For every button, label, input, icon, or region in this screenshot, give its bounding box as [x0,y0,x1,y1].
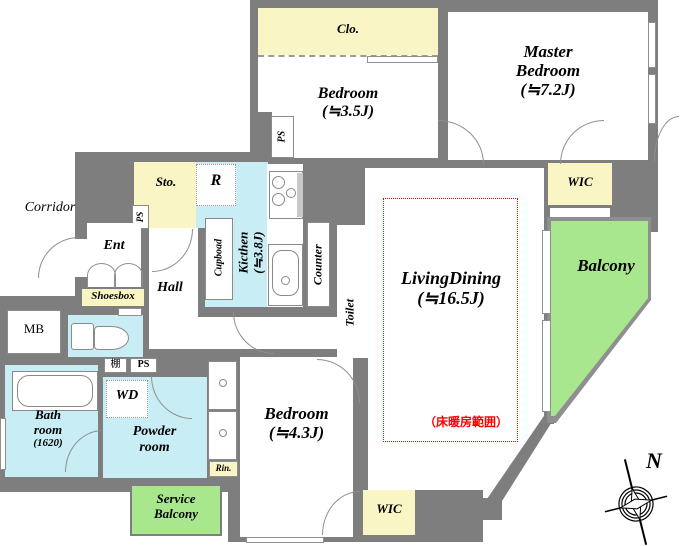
window [648,74,656,124]
room-name: Bath [14,408,82,423]
window [246,537,324,543]
label-ent: Ent [94,238,134,254]
label-bathroom: Bath room (1620) [14,408,82,449]
burner-icon [272,193,285,206]
faucet-icon [281,276,290,285]
room-name: LivingDining [389,268,513,288]
room-name: Balcony [132,507,220,522]
label-powder-room: Powder room [112,424,197,455]
label-ps-bedroom1: PS [276,117,287,157]
room-name: Bedroom [240,404,353,423]
label-corridor: Corridor [8,200,92,216]
label-floor-heating: （床暖房範囲） [416,416,516,429]
wall-counter-block [337,158,365,225]
toilet-sliding-door [118,308,142,316]
floor-heating-zone [383,198,518,442]
stove-grill [297,173,303,217]
label-shelf: 棚 [105,359,126,370]
bathtub-inner [17,375,93,407]
room-size: (≒4.3J) [240,423,353,442]
label-master-bedroom: Master Bedroom (≒7.2J) [478,42,618,99]
label-wic-upper: WIC [556,175,604,190]
toilet-bowl [94,326,129,350]
label-rin: Rin. [209,463,238,473]
room-name: Kicthen [236,208,251,298]
room-name: Powder [112,424,197,440]
label-kitchen: Kicthen (≒3.8J) [236,208,265,298]
window [648,22,656,68]
room-name: Service [132,492,220,507]
label-bedroom-4-3: Bedroom (≒4.3J) [240,404,353,442]
label-toilet: Toilet [343,283,356,343]
door-arc-entrance [38,237,79,278]
label-mb: MB [16,322,52,337]
room-name: room [14,423,82,438]
label-ps-row: PS [131,359,156,370]
room-size: (≒7.2J) [478,80,618,99]
label-bedroom-3-5: Bedroom (≒3.5J) [290,85,406,121]
room-name: room [112,440,197,456]
label-counter: Counter [311,225,324,305]
floor-plan: Corridor Clo. Bedroom (≒3.5J) Master Bed… [0,0,682,546]
room-size: (≒3.8J) [251,208,266,298]
compass-icon: N [596,448,682,546]
sink-basin [272,250,299,296]
room-name: Master [478,42,618,61]
room-name: Bedroom [478,61,618,80]
label-wd: WD [108,388,146,404]
wall-diagonal-foot [478,498,502,520]
window [367,56,438,63]
toilet-tank [71,323,94,350]
closet-fold-arc [87,263,116,288]
balcony [551,221,663,421]
window [0,418,6,470]
burner-icon [286,188,296,198]
wall-ps-patch [258,112,272,158]
faucet-icon [219,429,227,437]
window [542,320,551,412]
room-name: Bedroom [290,85,406,103]
closet-fold-arc [114,263,143,288]
label-service-balcony: Service Balcony [132,492,220,521]
label-hall: Hall [148,280,192,296]
label-clo: Clo. [318,22,378,37]
label-sto: Sto. [144,175,188,190]
room-size: (1620) [14,437,82,449]
label-ps-sto: PS [135,205,145,229]
room-size: (≒3.5J) [290,103,406,121]
compass-north-glyph: N [645,448,663,473]
label-refrigerator: R [198,172,234,190]
burner-icon [272,176,285,189]
label-balcony: Balcony [556,256,656,275]
label-shoesbox: Shoesbox [84,290,142,302]
faucet-icon [219,379,227,387]
room-size: (≒16.5J) [389,288,513,308]
label-wic-lower: WIC [365,502,413,517]
label-cupboard: Cupboad [213,218,224,298]
window [542,230,551,314]
label-living-dining: LivingDining (≒16.5J) [389,268,513,308]
